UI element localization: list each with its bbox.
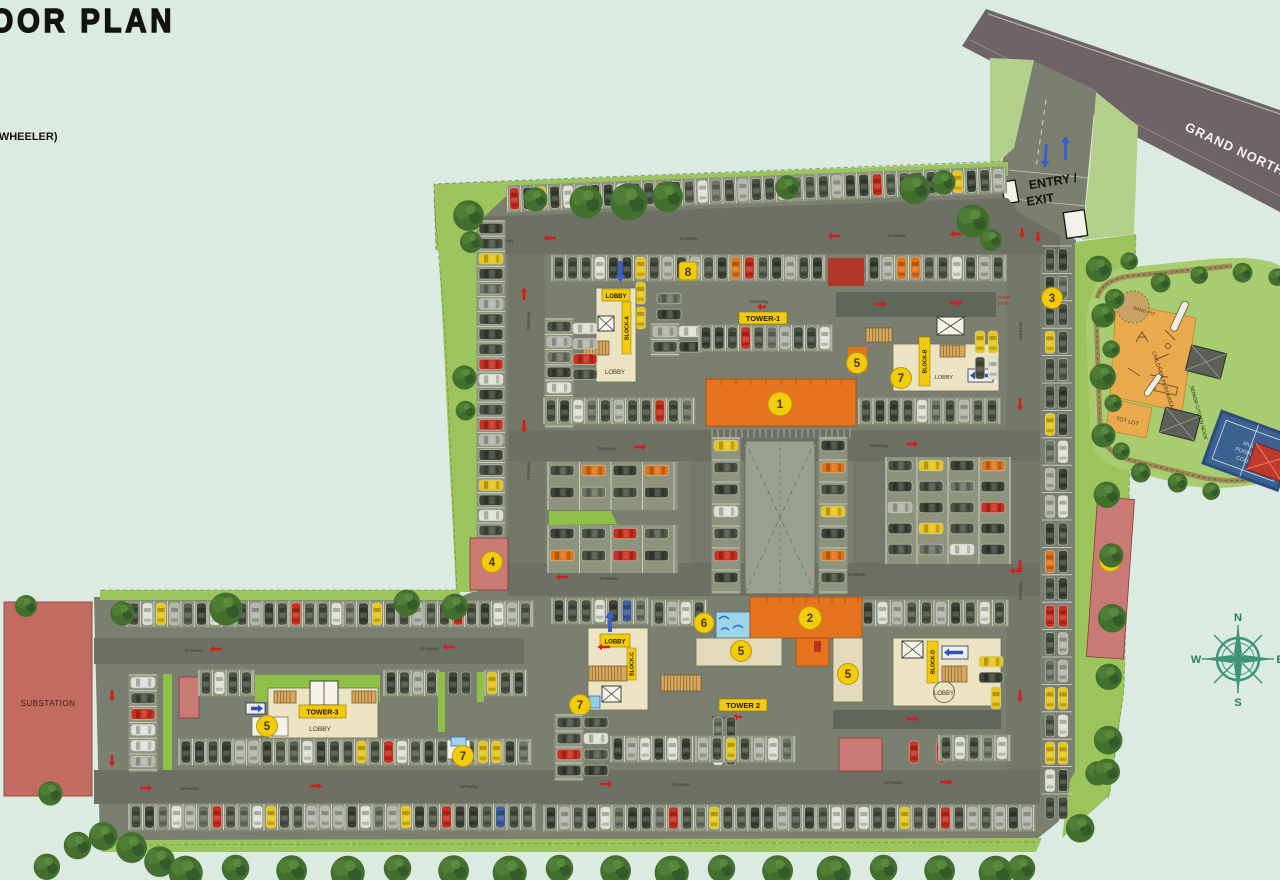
svg-text:Driveway: Driveway: [526, 311, 531, 330]
svg-text:5: 5: [264, 721, 271, 733]
svg-text:Driveway: Driveway: [884, 780, 903, 785]
svg-text:Driveway: Driveway: [598, 446, 617, 451]
svg-text:W: W: [1191, 654, 1202, 666]
svg-text:LOBBY: LOBBY: [934, 691, 954, 697]
svg-text:Driveway: Driveway: [1018, 321, 1023, 340]
svg-text:EXIT: EXIT: [998, 301, 1008, 306]
svg-text:7: 7: [898, 373, 904, 385]
svg-text:4: 4: [489, 557, 496, 569]
svg-text:BLOCK-B: BLOCK-B: [923, 349, 929, 373]
svg-text:Driveway: Driveway: [870, 443, 889, 448]
svg-text:8: 8: [685, 265, 692, 279]
svg-text:LOBBY: LOBBY: [309, 726, 331, 733]
svg-text:SUBSTATION: SUBSTATION: [21, 699, 76, 708]
svg-text:Driveway: Driveway: [185, 648, 204, 653]
svg-text:S: S: [1234, 697, 1241, 709]
svg-text:Driveway: Driveway: [600, 576, 619, 581]
svg-text:Driveway: Driveway: [888, 233, 907, 238]
svg-text:7: 7: [460, 751, 466, 763]
svg-text:LOBBY: LOBBY: [605, 370, 625, 376]
svg-text:Driveway: Driveway: [180, 786, 199, 791]
svg-text:1: 1: [777, 399, 784, 411]
svg-text:5: 5: [738, 646, 745, 658]
svg-text:Driveway: Driveway: [680, 236, 699, 241]
svg-text:RAMP: RAMP: [998, 295, 1011, 300]
svg-text:TOWER 2: TOWER 2: [726, 701, 760, 710]
svg-text:5: 5: [845, 669, 852, 681]
svg-text:LOBBY: LOBBY: [935, 375, 954, 381]
svg-text:Driveway: Driveway: [750, 299, 769, 304]
svg-text:BLOCK-D: BLOCK-D: [931, 650, 937, 674]
svg-text:BLOCK-C: BLOCK-C: [630, 652, 636, 676]
svg-text:LOOR PLAN: LOOR PLAN: [0, 3, 175, 40]
svg-text:(2 WHEELER): (2 WHEELER): [0, 131, 58, 143]
svg-text:LOBBY: LOBBY: [605, 639, 626, 645]
svg-text:2: 2: [807, 613, 813, 625]
svg-text:Driveway: Driveway: [526, 461, 531, 480]
svg-text:Driveway: Driveway: [420, 646, 439, 651]
svg-text:5: 5: [854, 358, 861, 370]
svg-text:TOWER-3: TOWER-3: [306, 709, 338, 716]
svg-text:N: N: [1234, 612, 1242, 624]
svg-text:TOWER-1: TOWER-1: [746, 314, 780, 323]
svg-text:BLOCK-A: BLOCK-A: [625, 316, 631, 340]
svg-text:6: 6: [701, 618, 707, 630]
svg-text:7: 7: [577, 700, 583, 712]
svg-text:Driveway: Driveway: [460, 784, 479, 789]
svg-text:Driveway: Driveway: [848, 572, 867, 577]
svg-text:Driveway: Driveway: [1018, 581, 1023, 600]
svg-text:Driveway: Driveway: [672, 782, 691, 787]
svg-text:E: E: [1276, 654, 1280, 666]
svg-text:LOBBY: LOBBY: [606, 294, 627, 300]
svg-text:3: 3: [1049, 293, 1055, 305]
